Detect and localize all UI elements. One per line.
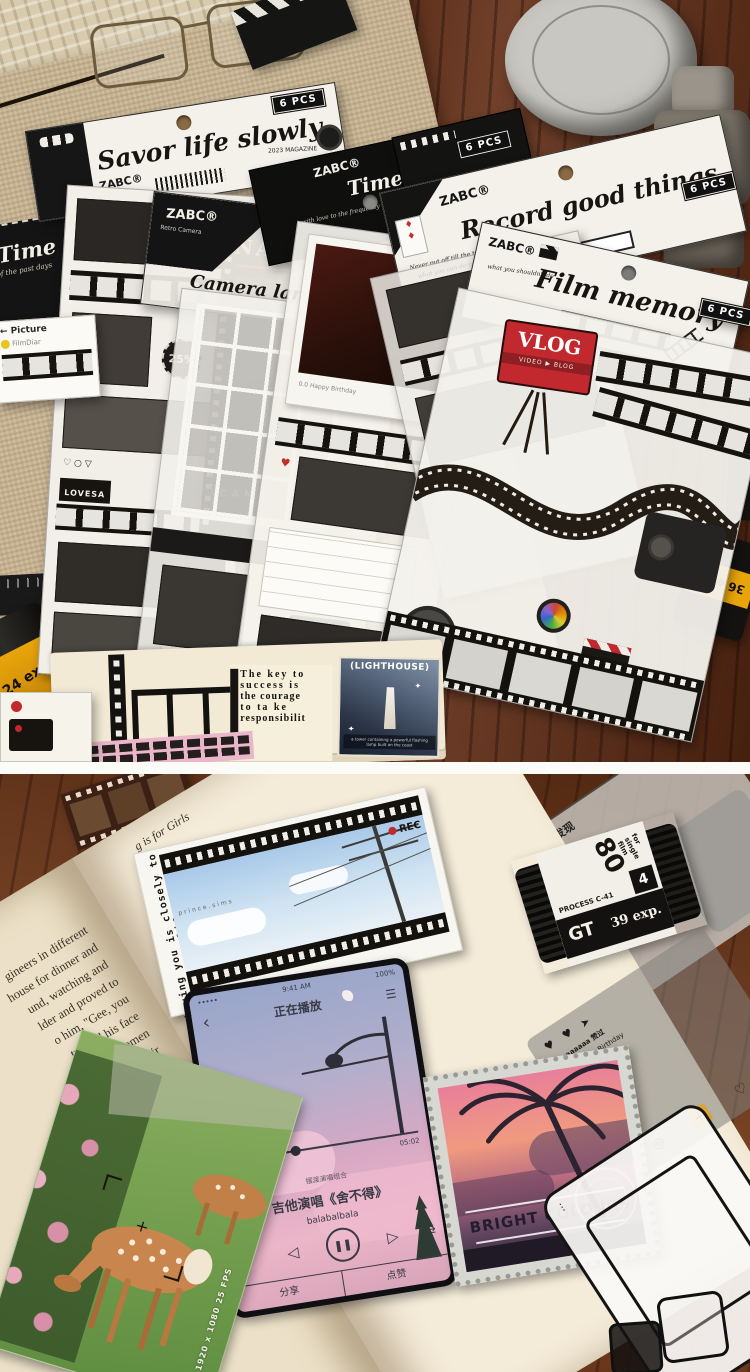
reel-holes-icon (39, 133, 74, 148)
next-icon: ▷ (386, 1227, 400, 1247)
mini-photo-chip (9, 719, 53, 751)
roll-code: GT (566, 918, 598, 946)
pause-button: ❚❚ (323, 1225, 362, 1264)
deer-secondary (180, 1167, 272, 1252)
picture-card-title: Picture (10, 324, 47, 337)
key-quote-line: responsibilit (240, 713, 330, 724)
loves-chip: LOVESA (59, 478, 111, 504)
loves-text: LOVESA (64, 488, 105, 499)
social-icons-row: ♡ ○ ▽ (63, 458, 92, 470)
signal-dots: ••••• (197, 996, 219, 1007)
mini-clapper-icon (539, 244, 559, 261)
key-quote-line: success is (240, 680, 330, 691)
picture-card-subtitle: FilmDiar (12, 338, 41, 348)
record-top-pcs-badge: 6 PCS (457, 130, 511, 158)
playing-card-sticker: ♦♦ (395, 215, 429, 258)
streetlamp-silhouette (285, 1012, 432, 1151)
projector-lens (646, 532, 677, 563)
hang-hole (557, 164, 575, 182)
film-perforation (400, 130, 456, 150)
deer-main (41, 1207, 218, 1365)
back-chevron-icon: ‹ (201, 1012, 211, 1034)
total-time: 05:02 (399, 1136, 420, 1147)
rec-dot-icon (387, 826, 397, 836)
sparkle-icon: ✦ (414, 682, 421, 691)
film-strip-sticker (2, 349, 94, 381)
open-book: The key to success is the courage to ta … (50, 639, 446, 762)
record-brand: ZABC® (438, 182, 492, 210)
red-dot-icon (15, 725, 22, 732)
black-outline-frame-sticker (608, 1320, 664, 1372)
glasses-lens-left (89, 15, 190, 90)
now-playing-title: 正在播放 (273, 996, 323, 1020)
roll-number: 4 (637, 870, 651, 888)
black-outline-frame-sticker (656, 1290, 731, 1365)
filmmemory-brand: ZABC® (487, 235, 537, 259)
smiley-icon (1, 340, 11, 350)
sparkle-icon: ✦ (348, 724, 355, 733)
red-dot-icon (11, 701, 22, 712)
battery-level: 100% (375, 968, 396, 979)
lighthouse-caption: a tower containing a powerful flashing l… (343, 734, 435, 750)
frame-dots: ⋮ (556, 1202, 568, 1213)
key-quote-line: The key to (240, 669, 330, 680)
bottom-photo-scene: 发现 gineers in different house for dinner… (0, 774, 750, 1372)
glasses-bridge (181, 21, 209, 29)
lighthouse-card: (LIGHTHOUSE) ✦ ✦ a tower containing a po… (337, 656, 441, 758)
heart-icon: ♥ (280, 456, 292, 470)
vlog-badge: VLOG VIDEO ▶ BLOG (496, 319, 598, 396)
sticker-photo-block (153, 565, 250, 655)
status-time: 9:41 AM (282, 982, 312, 994)
savor-barcode (155, 167, 226, 192)
key-quote-line: to ta ke (240, 702, 330, 713)
hang-hole (620, 264, 638, 282)
top-photo-scene: 24 exp. 36 exp. Time of the past days ZA… (0, 0, 750, 762)
savor-edition: 2023 MAGAZINE (268, 145, 318, 155)
back-arrow-icon: ← (0, 327, 8, 338)
section-divider (0, 762, 750, 774)
lighthouse-title: (LIGHTHOUSE) (341, 661, 439, 673)
menu-icon: ☰ (384, 986, 397, 1002)
savor-pcs-badge: 6 PCS (271, 89, 325, 114)
key-quote-line: the courage (240, 691, 330, 702)
lighthouse-tower (384, 687, 397, 729)
heart-icon: ♡ (732, 1080, 750, 1100)
roll-exp: 39 exp. (609, 902, 663, 932)
mini-sticker-card (0, 692, 92, 762)
color-wheel-icon (533, 595, 574, 636)
film-frame (138, 695, 169, 742)
polaroid-caption: 0.0 Happy Birthday (298, 381, 357, 396)
hang-hole (175, 114, 192, 131)
picture-card: ← Picture FilmDiar (0, 315, 101, 404)
previous-icon: ◁ (286, 1243, 300, 1263)
